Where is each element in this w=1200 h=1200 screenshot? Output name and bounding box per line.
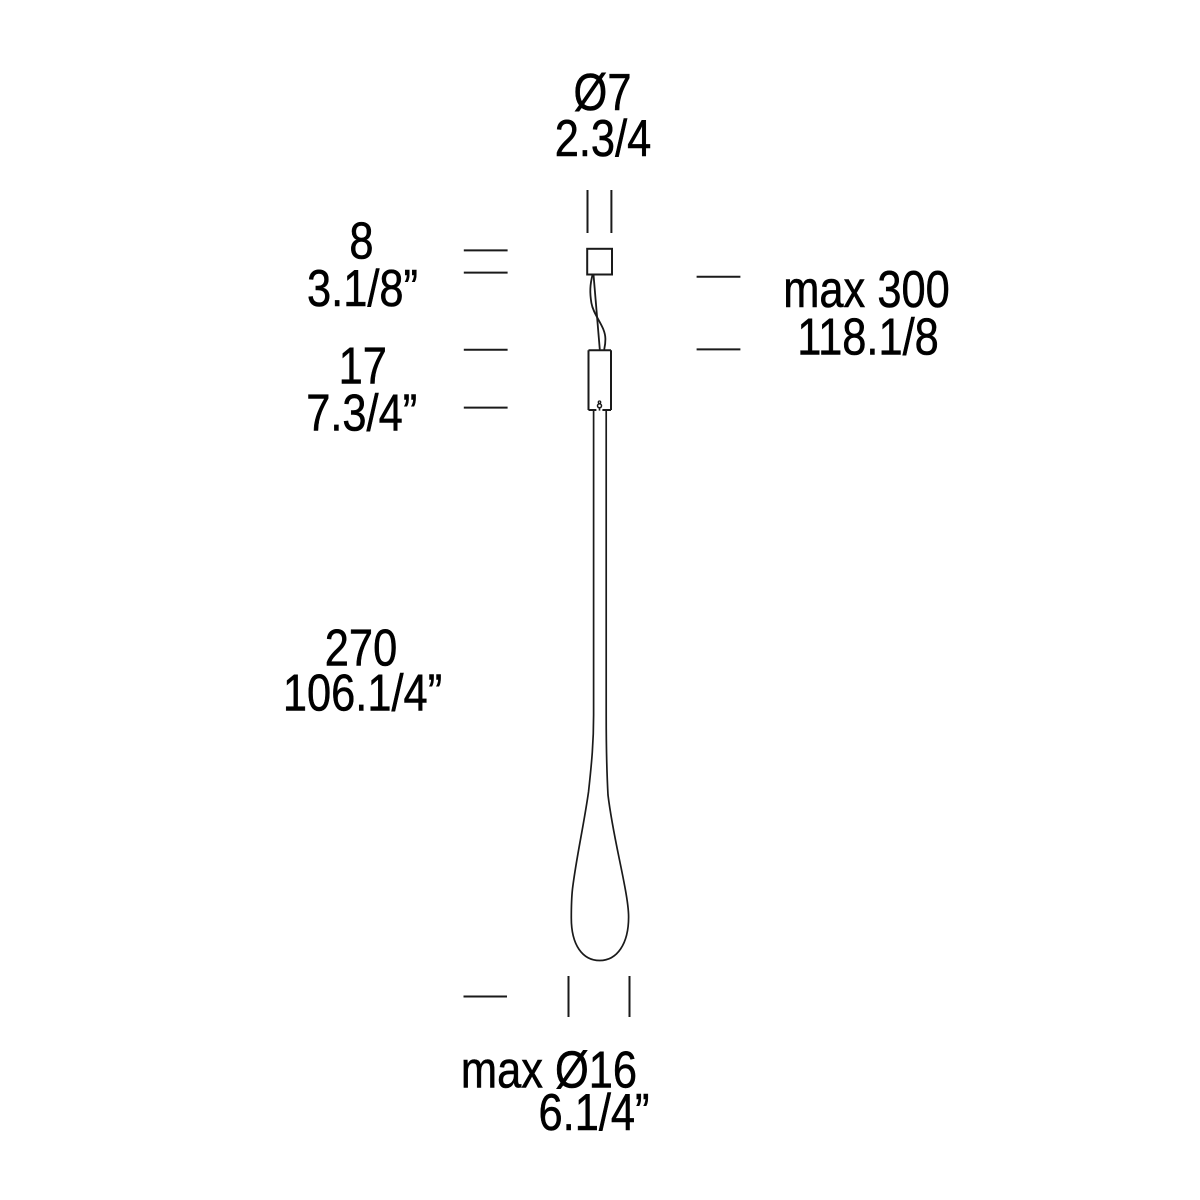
svg-text:106.1/4”: 106.1/4”	[283, 665, 442, 723]
svg-text:3.1/8”: 3.1/8”	[307, 260, 418, 318]
svg-text:6.1/4”: 6.1/4”	[538, 1084, 649, 1142]
svg-text:118.1/8: 118.1/8	[797, 309, 939, 367]
svg-text:7.3/4”: 7.3/4”	[306, 385, 417, 443]
svg-text:2.3/4: 2.3/4	[555, 110, 652, 168]
